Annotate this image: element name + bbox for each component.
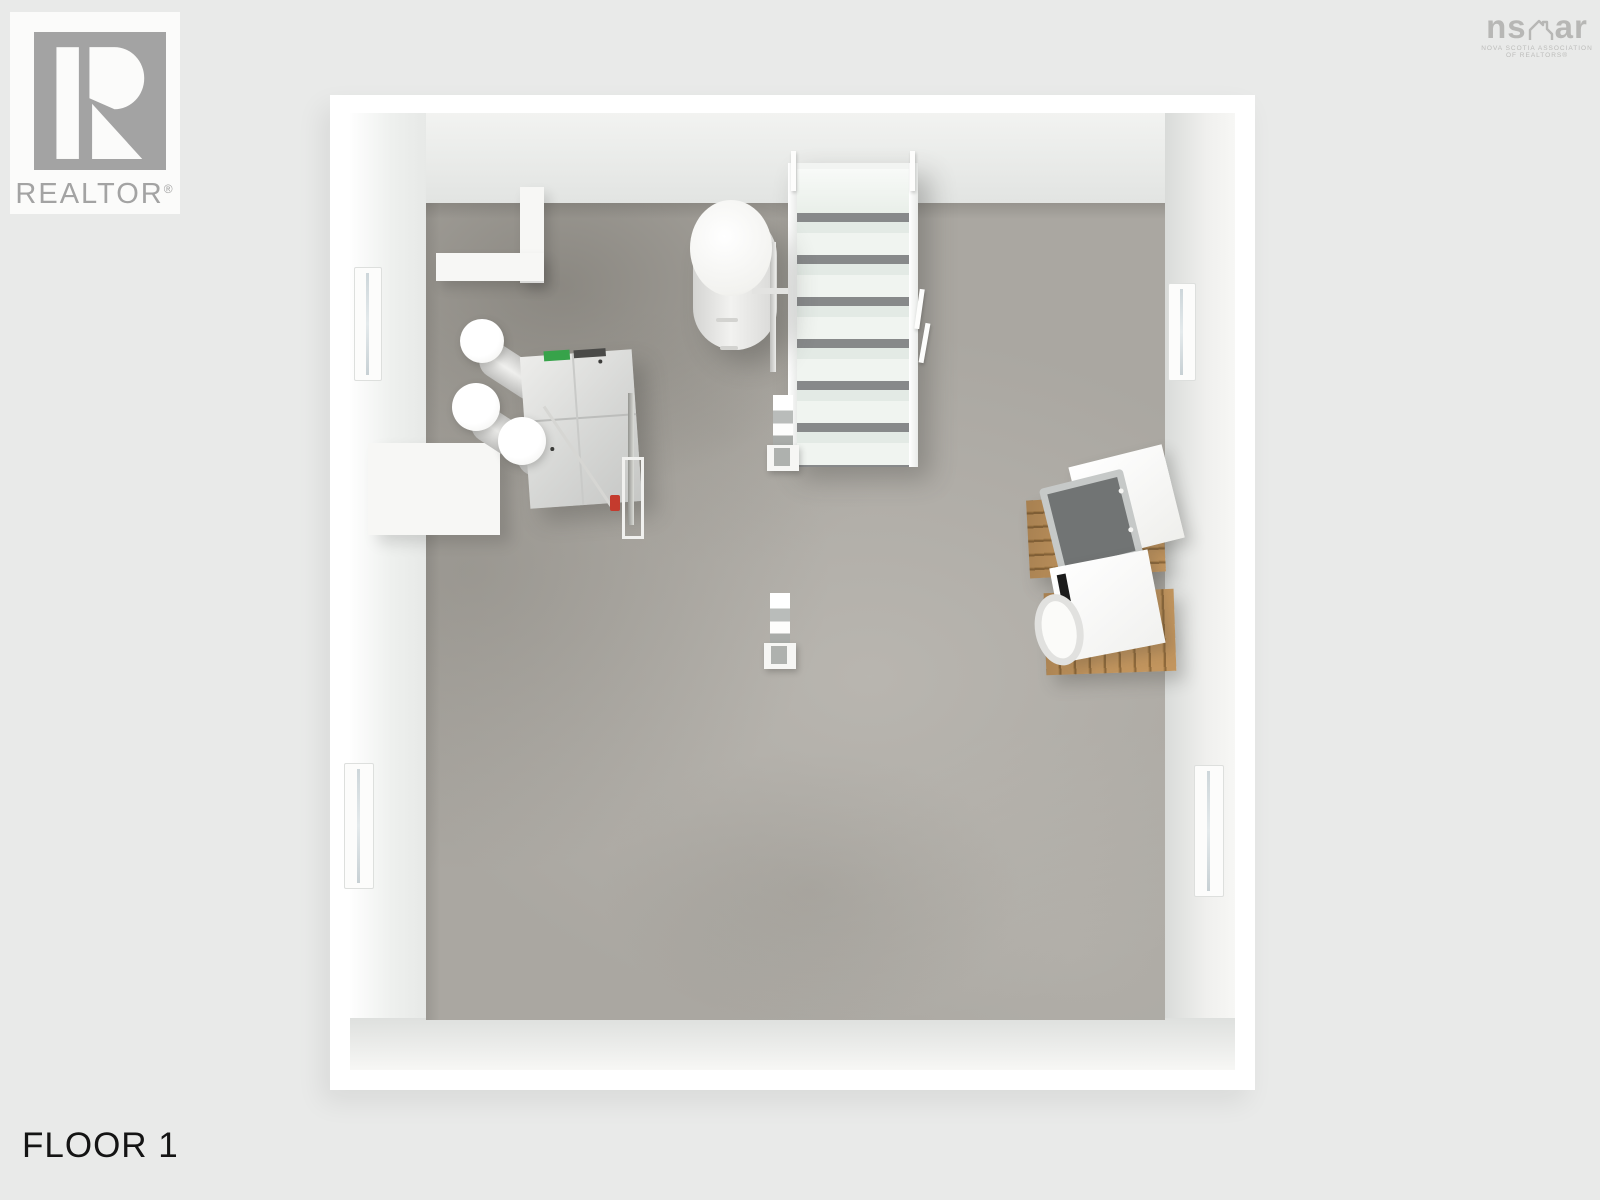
alcove-wall-stub-horizontal (436, 253, 544, 281)
water-heater-pipe-stub (752, 288, 788, 294)
hrv-ventilation-unit (470, 335, 650, 525)
basement-room (330, 95, 1255, 1090)
duct-cap (452, 383, 500, 431)
water-heater (690, 200, 786, 352)
realtor-r-icon (34, 32, 166, 170)
floor-plan-render: REALTOR® ns ar NOVA SCOTIA ASSOCIATION O… (0, 0, 1600, 1200)
house-icon (1528, 18, 1554, 42)
window-west-upper (354, 267, 382, 381)
nsar-subtext-line1: NOVA SCOTIA ASSOCIATION (1474, 45, 1600, 52)
south-wall-face (350, 1018, 1235, 1070)
water-heater-top (690, 200, 772, 296)
railing-post (910, 151, 915, 191)
realtor-wordmark: REALTOR® (10, 178, 180, 211)
window-east-upper (1168, 283, 1196, 381)
green-indicator (543, 350, 570, 362)
nsar-text-left: ns (1486, 12, 1527, 42)
dark-vent-slot (573, 348, 605, 358)
red-valve (610, 495, 620, 511)
nsar-wordmark: ns ar (1474, 12, 1600, 42)
nsar-subtext-line2: OF REALTORS® (1474, 52, 1600, 59)
nsar-text-right: ar (1555, 12, 1588, 42)
duct-cap (460, 319, 504, 363)
railing-post (791, 151, 796, 191)
water-heater-pipe (770, 242, 776, 372)
realtor-label: REALTOR (15, 178, 163, 210)
washer-station (1020, 553, 1180, 678)
stair-treads (797, 213, 909, 467)
realtor-registered-mark: ® (164, 182, 175, 196)
duct-cap (498, 417, 546, 465)
floor-title: FLOOR 1 (22, 1126, 179, 1166)
staircase (788, 163, 918, 467)
window-west-lower (344, 763, 374, 889)
realtor-logo: REALTOR® (10, 12, 180, 214)
stair-landing (797, 169, 909, 213)
window-east-lower (1194, 765, 1224, 897)
nsar-logo: ns ar NOVA SCOTIA ASSOCIATION OF REALTOR… (1474, 12, 1600, 59)
pipe-channel (622, 457, 644, 539)
